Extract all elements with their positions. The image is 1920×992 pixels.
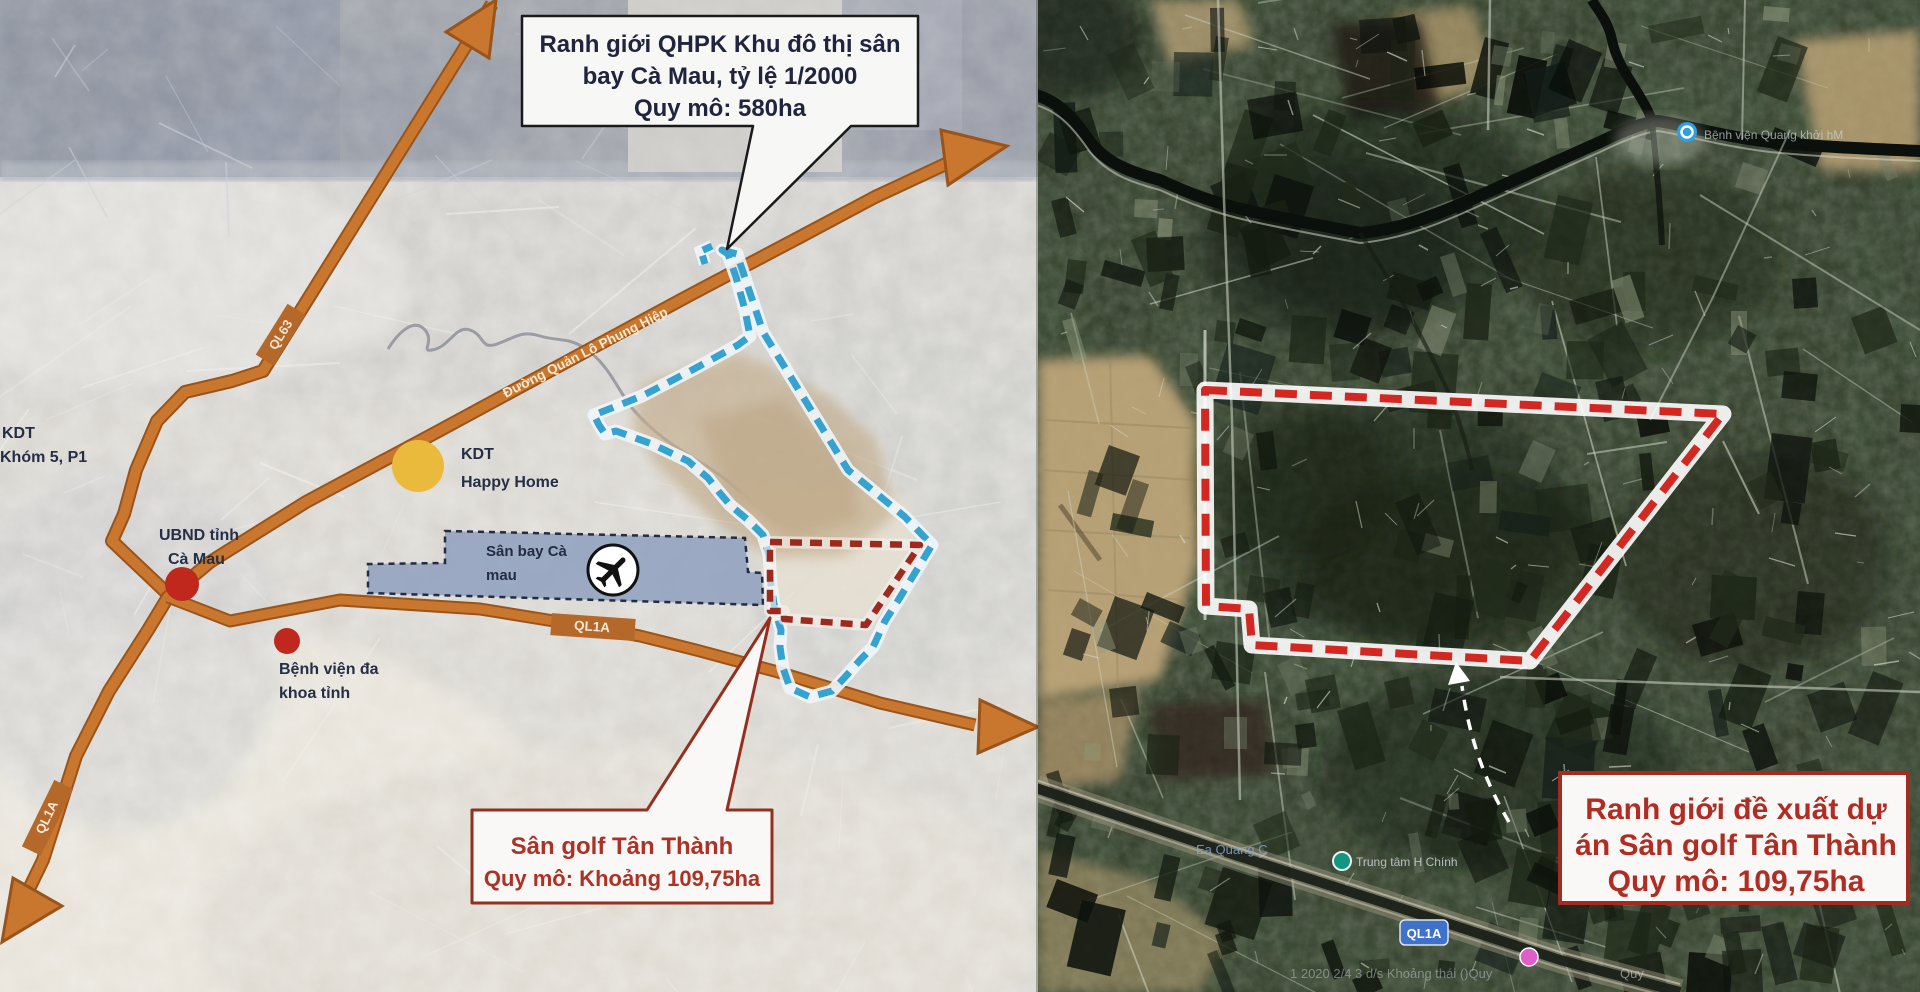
svg-text:bay Cà Mau, tỷ lệ 1/2000: bay Cà Mau, tỷ lệ 1/2000 xyxy=(583,63,858,90)
svg-text:mau: mau xyxy=(486,567,517,584)
svg-text:QL1A: QL1A xyxy=(1407,926,1442,941)
svg-text:Ranh giới QHPK Khu đô thị sân: Ranh giới QHPK Khu đô thị sân xyxy=(539,31,900,58)
svg-text:QL1A: QL1A xyxy=(574,618,611,635)
svg-text:Quy mô: 580ha: Quy mô: 580ha xyxy=(634,95,807,122)
svg-text:Ranh giới đề xuất dự: Ranh giới đề xuất dự xyxy=(1585,793,1887,826)
svg-text:KDT: KDT xyxy=(461,446,494,463)
svg-text:Quy mô: 109,75ha: Quy mô: 109,75ha xyxy=(1608,865,1865,898)
svg-text:Cà Mau: Cà Mau xyxy=(168,551,225,568)
svg-text:Khóm 5, P1: Khóm 5, P1 xyxy=(0,449,87,466)
svg-text:Trung tâm H Chính: Trung tâm H Chính xyxy=(1356,855,1458,869)
svg-text:1 2020 2/4 3 d/s Khoảng thái: 1 2020 2/4 3 d/s Khoảng thái ()Quy xyxy=(1290,966,1493,981)
svg-text:Sân golf Tân Thành: Sân golf Tân Thành xyxy=(511,833,734,860)
svg-text:Bệnh viện Quang khởi hM: Bệnh viện Quang khởi hM xyxy=(1704,128,1843,142)
svg-text:Quy: Quy xyxy=(1620,966,1644,981)
svg-text:Quy mô: Khoảng 109,75ha: Quy mô: Khoảng 109,75ha xyxy=(484,866,761,891)
svg-text:Sân bay Cà: Sân bay Cà xyxy=(486,543,568,560)
svg-text:UBND tỉnh: UBND tỉnh xyxy=(159,527,239,544)
svg-text:Ea Quang C: Ea Quang C xyxy=(1196,842,1268,857)
svg-text:khoa tỉnh: khoa tỉnh xyxy=(279,685,350,702)
svg-text:án Sân golf Tân Thành: án Sân golf Tân Thành xyxy=(1575,829,1897,862)
svg-text:KDT: KDT xyxy=(2,425,35,442)
svg-text:Happy Home: Happy Home xyxy=(461,474,559,491)
svg-text:Bệnh viện đa: Bệnh viện đa xyxy=(279,661,379,678)
